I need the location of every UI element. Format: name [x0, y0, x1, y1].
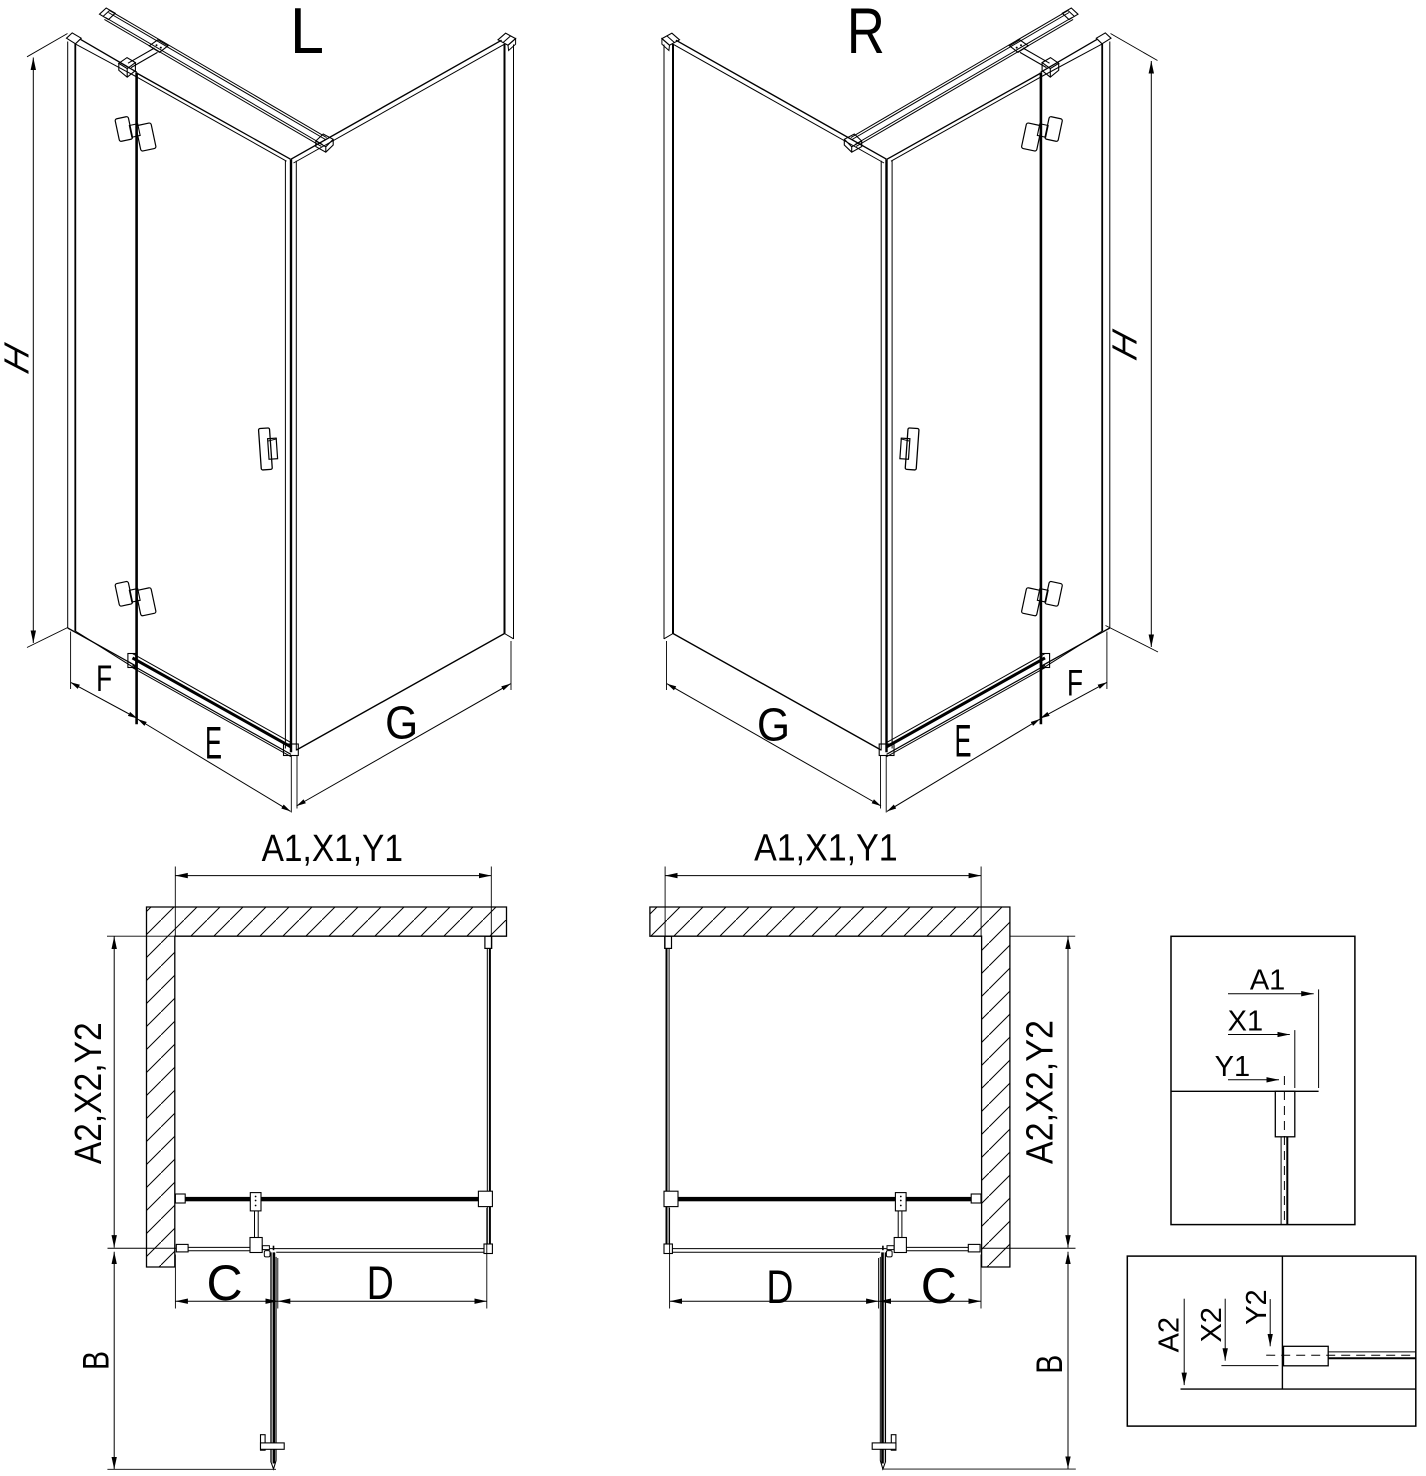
svg-text:A1,X1,Y1: A1,X1,Y1 — [262, 828, 403, 870]
svg-text:X1: X1 — [1228, 1006, 1263, 1038]
svg-text:A1,X1,Y1: A1,X1,Y1 — [754, 828, 898, 870]
svg-text:B: B — [1029, 1355, 1070, 1374]
svg-text:E: E — [205, 718, 222, 769]
svg-text:G: G — [757, 699, 790, 751]
svg-text:C: C — [921, 1258, 957, 1314]
svg-text:E: E — [955, 716, 972, 767]
svg-text:R: R — [847, 0, 885, 67]
svg-text:F: F — [96, 658, 112, 699]
svg-text:A2,X2,Y2: A2,X2,Y2 — [68, 1022, 110, 1164]
svg-text:C: C — [207, 1255, 243, 1311]
svg-text:Y1: Y1 — [1215, 1051, 1250, 1083]
svg-text:D: D — [367, 1256, 394, 1309]
svg-text:G: G — [385, 697, 418, 749]
svg-text:A2: A2 — [1154, 1317, 1186, 1352]
svg-text:D: D — [766, 1260, 793, 1313]
svg-text:Y2: Y2 — [1241, 1289, 1273, 1324]
svg-text:L: L — [290, 0, 324, 67]
svg-text:F: F — [1067, 663, 1083, 704]
svg-text:A2,X2,Y2: A2,X2,Y2 — [1019, 1020, 1061, 1164]
svg-text:A1: A1 — [1250, 964, 1285, 996]
svg-text:B: B — [75, 1351, 116, 1370]
svg-text:X2: X2 — [1196, 1307, 1228, 1342]
